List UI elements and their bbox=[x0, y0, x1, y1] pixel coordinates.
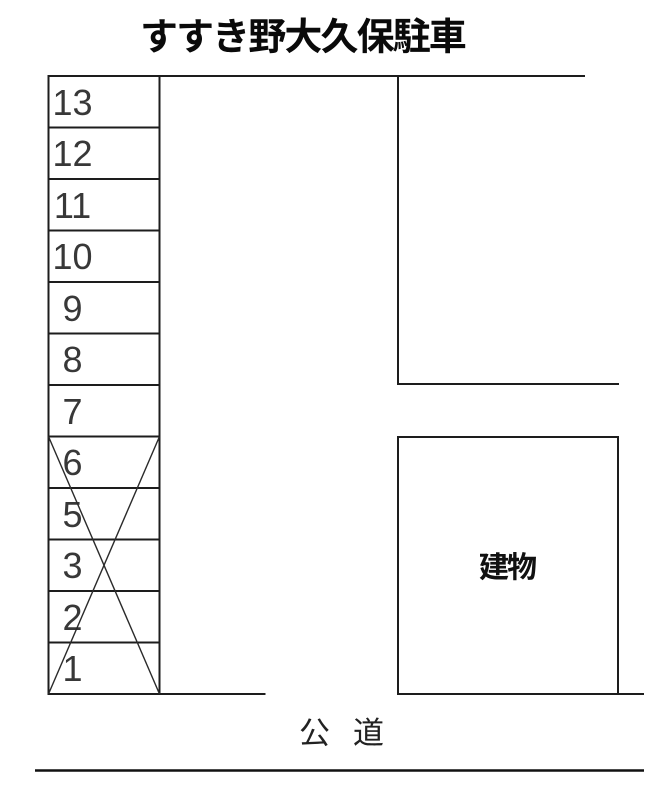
svg-text:3: 3 bbox=[62, 545, 82, 586]
svg-text:5: 5 bbox=[62, 494, 82, 535]
svg-text:7: 7 bbox=[62, 391, 82, 432]
svg-text:12: 12 bbox=[52, 133, 92, 174]
svg-text:8: 8 bbox=[62, 339, 82, 380]
svg-text:9: 9 bbox=[62, 288, 82, 329]
svg-text:2: 2 bbox=[62, 597, 82, 638]
svg-text:10: 10 bbox=[52, 236, 92, 277]
svg-text:11: 11 bbox=[54, 185, 91, 226]
svg-text:13: 13 bbox=[52, 82, 92, 123]
